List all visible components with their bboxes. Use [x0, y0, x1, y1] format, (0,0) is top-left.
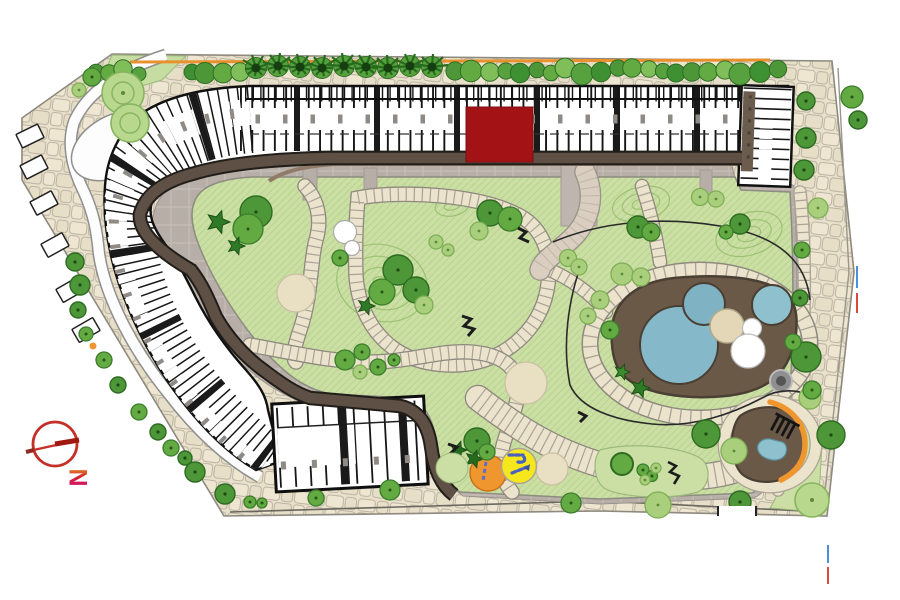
svg-text:N: N — [64, 469, 92, 487]
